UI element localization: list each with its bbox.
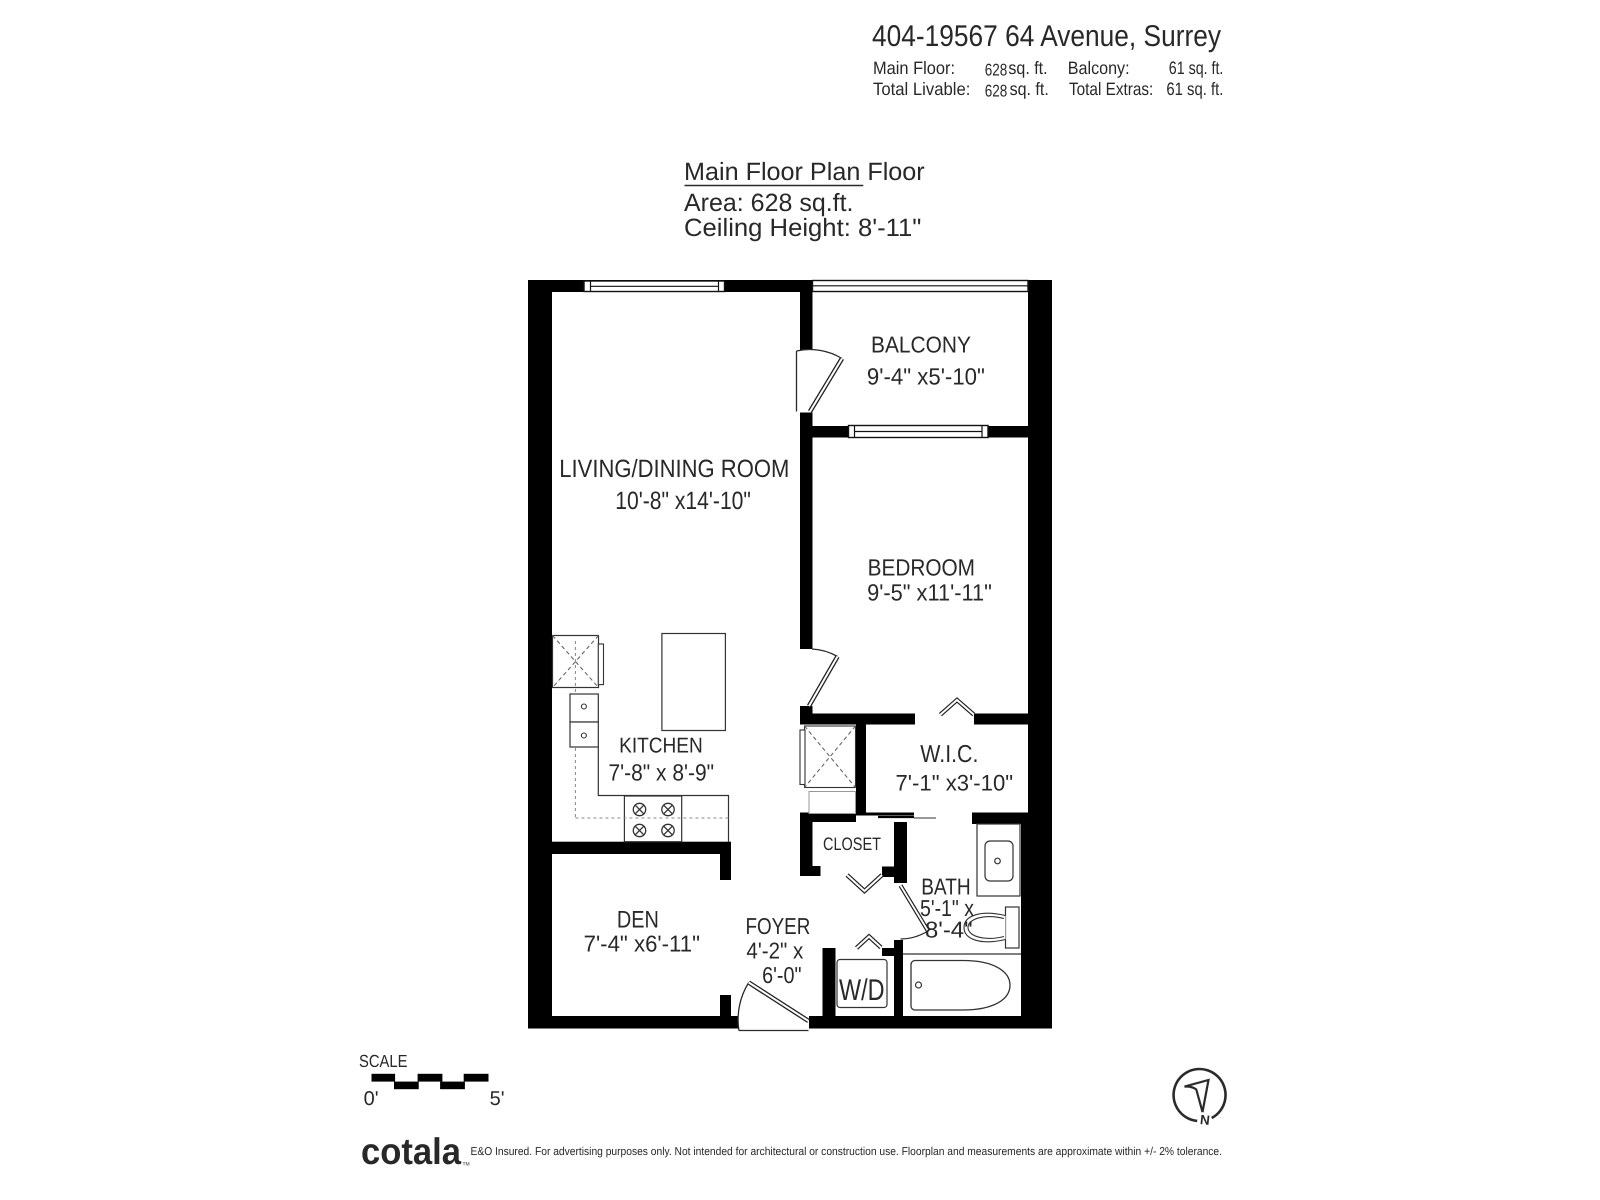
svg-text:6'-0": 6'-0" bbox=[762, 962, 801, 988]
svg-text:0': 0' bbox=[364, 1088, 379, 1110]
svg-text:628: 628 bbox=[985, 61, 1008, 80]
svg-text:9'-4" x5'-10": 9'-4" x5'-10" bbox=[867, 364, 985, 390]
svg-text:cotala: cotala bbox=[361, 1131, 461, 1172]
svg-text:TM: TM bbox=[463, 1162, 470, 1168]
svg-text:LIVING/DINING ROOM: LIVING/DINING ROOM bbox=[559, 455, 789, 483]
svg-text:sq. ft.: sq. ft. bbox=[1010, 79, 1049, 99]
svg-text:FOYER: FOYER bbox=[746, 913, 811, 939]
svg-text:Main Floor:: Main Floor: bbox=[873, 58, 955, 78]
svg-text:W/D: W/D bbox=[839, 974, 885, 1007]
svg-text:Area: 628 sq.ft.: Area: 628 sq.ft. bbox=[684, 189, 854, 217]
svg-text:7'-4" x6'-11": 7'-4" x6'-11" bbox=[584, 931, 700, 957]
svg-text:E&O Insured. For advertising p: E&O Insured. For advertising purposes on… bbox=[471, 1146, 1223, 1158]
svg-text:10'-8" x14'-10": 10'-8" x14'-10" bbox=[615, 487, 751, 515]
svg-text:628: 628 bbox=[985, 82, 1008, 101]
svg-text:BEDROOM: BEDROOM bbox=[868, 554, 975, 580]
svg-text:SCALE: SCALE bbox=[359, 1051, 408, 1071]
svg-text:Main Floor Plan Floor: Main Floor Plan Floor bbox=[684, 158, 925, 186]
svg-text:7'-8" x 8'-9": 7'-8" x 8'-9" bbox=[609, 760, 715, 786]
svg-text:sq. ft.: sq. ft. bbox=[1008, 58, 1047, 78]
svg-text:W.I.C.: W.I.C. bbox=[920, 741, 978, 768]
svg-text:9'-5" x11'-11": 9'-5" x11'-11" bbox=[867, 580, 992, 606]
svg-text:4'-2" x: 4'-2" x bbox=[746, 937, 803, 963]
svg-text:61 sq. ft.: 61 sq. ft. bbox=[1169, 58, 1224, 78]
svg-text:404-19567 64 Avenue, Surrey: 404-19567 64 Avenue, Surrey bbox=[872, 20, 1221, 53]
svg-text:N: N bbox=[1199, 1112, 1210, 1128]
svg-text:Ceiling Height: 8'-11": Ceiling Height: 8'-11" bbox=[684, 214, 921, 242]
svg-text:Balcony:: Balcony: bbox=[1068, 58, 1130, 78]
svg-text:Total Livable:: Total Livable: bbox=[873, 79, 970, 99]
svg-text:CLOSET: CLOSET bbox=[823, 834, 881, 854]
svg-text:7'-1" x3'-10": 7'-1" x3'-10" bbox=[896, 771, 1014, 796]
svg-text:KITCHEN: KITCHEN bbox=[619, 734, 703, 758]
svg-text:5': 5' bbox=[490, 1088, 505, 1110]
svg-text:8'-4": 8'-4" bbox=[925, 917, 973, 943]
svg-text:BALCONY: BALCONY bbox=[871, 331, 971, 357]
svg-text:Total Extras:: Total Extras: bbox=[1069, 79, 1153, 99]
svg-text:61 sq. ft.: 61 sq. ft. bbox=[1166, 79, 1223, 99]
